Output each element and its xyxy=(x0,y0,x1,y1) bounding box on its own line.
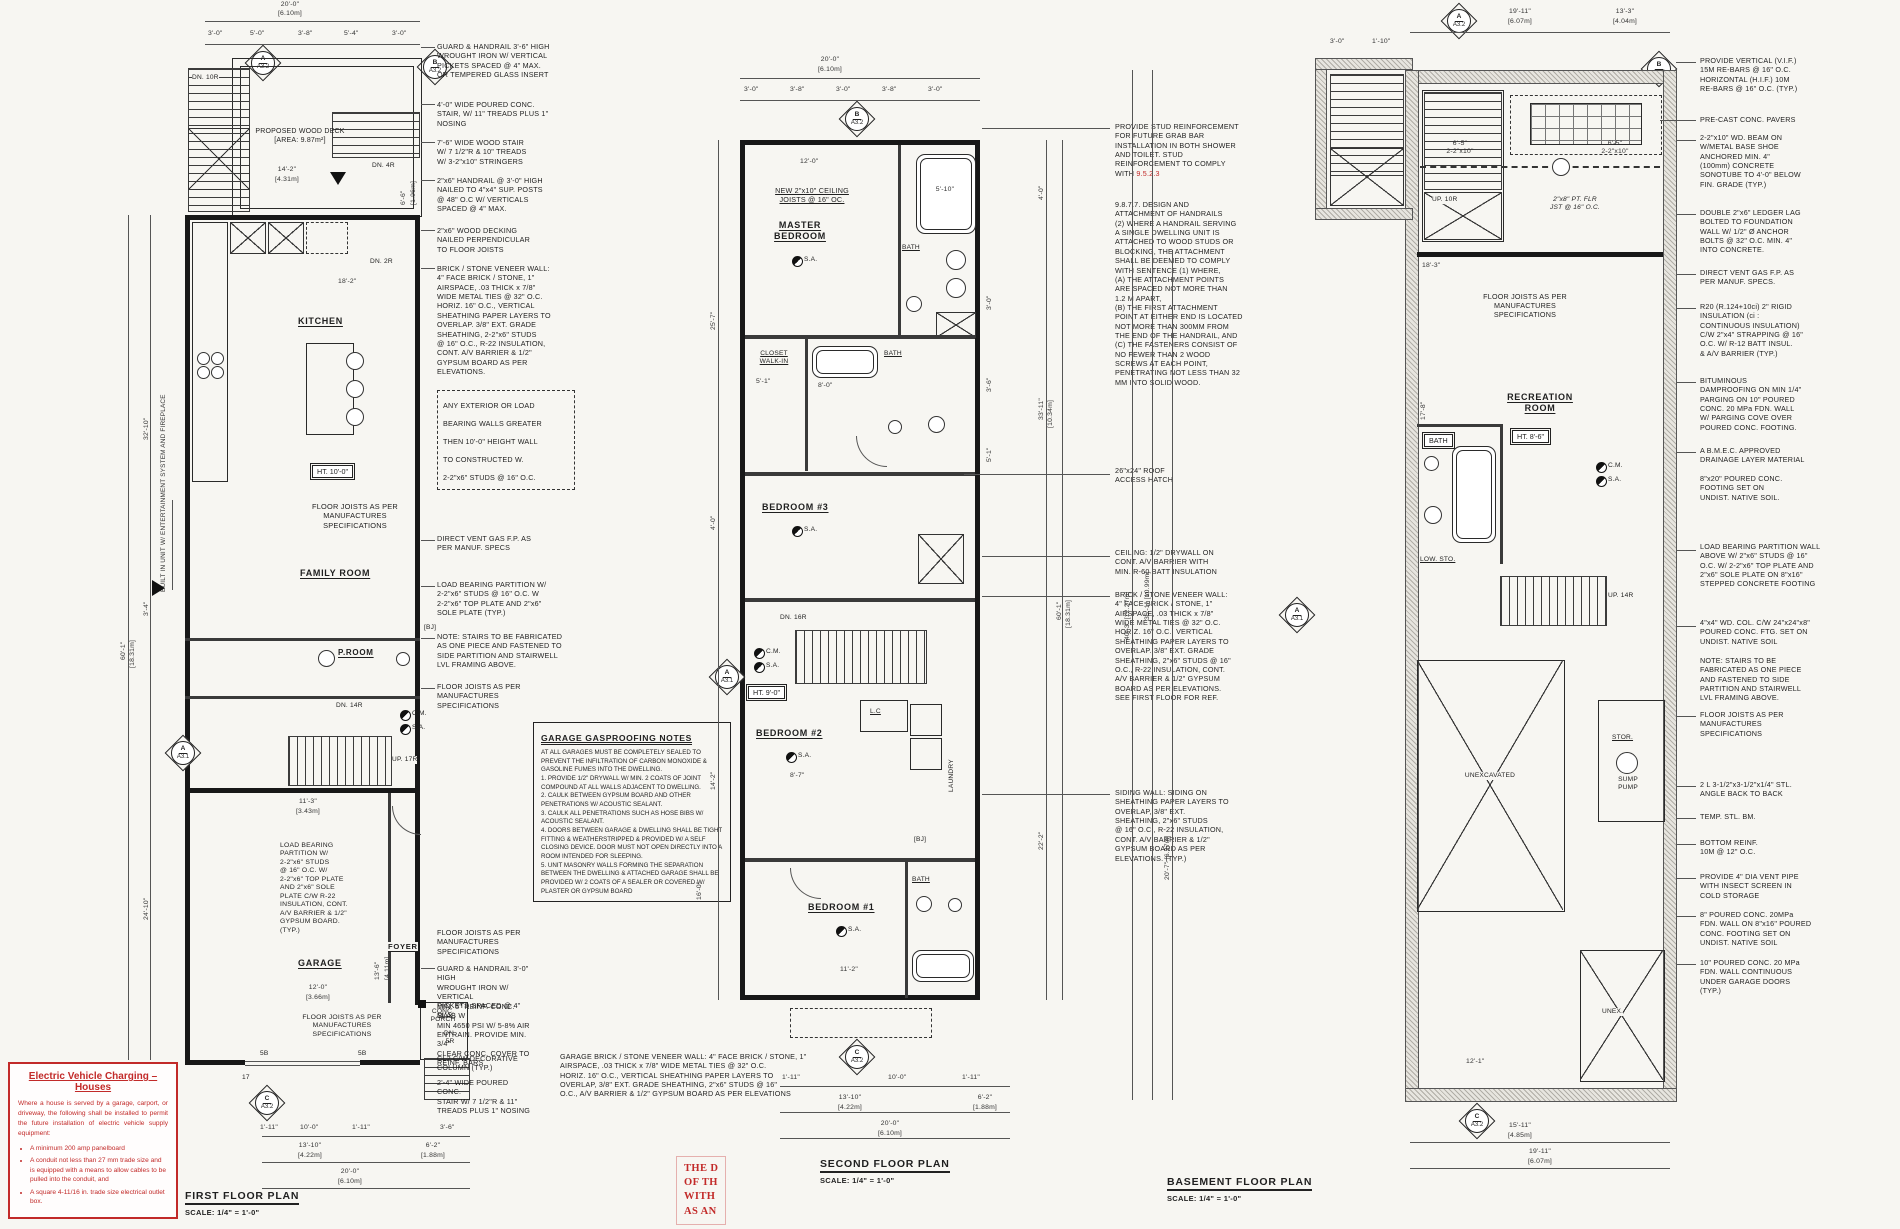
smoke-alarm-icon xyxy=(792,256,803,267)
annotation: LOAD BEARING PARTITION W/ 2-2"x6" STUDS … xyxy=(437,580,587,617)
beam-tag: [BJ] xyxy=(424,624,436,632)
annotation: DIRECT VENT GAS F.P. AS PER MANUF. SPECS xyxy=(437,534,587,553)
annotation: 8" POURED CONC. 20MPa FDN. WALL ON 8"x16… xyxy=(1700,910,1870,947)
dim-label: 60'-1" xyxy=(1056,601,1064,620)
stairwell-wall xyxy=(1315,208,1413,220)
dim-label: [18.31m] xyxy=(129,640,137,668)
dim-label: 8'-7" xyxy=(790,772,805,780)
dim-label: 19'-11" xyxy=(1500,1148,1580,1156)
dim-label: 3'-8" xyxy=(882,86,897,94)
dim-label: [6.07m] xyxy=(1480,18,1560,26)
dimension-line xyxy=(1410,32,1670,33)
beam-label: 6'-5" 2-2"x10" xyxy=(1585,140,1645,157)
dim-label: [10.34m] xyxy=(1047,400,1055,428)
dim-label: 3'-0" xyxy=(836,86,851,94)
dim-label: 11'-2" xyxy=(840,966,858,974)
marker-sheet: A3.2 xyxy=(1453,22,1465,29)
dim-label: 16'-0" xyxy=(696,881,704,900)
ceiling-height-badge: HT. 9'-0" xyxy=(748,686,785,699)
leader-line xyxy=(421,142,435,143)
sump-pump-label: SUMP PUMP xyxy=(1608,776,1648,792)
stair-label: UP. 10R xyxy=(1432,196,1457,204)
dryer xyxy=(910,738,942,770)
stair-x xyxy=(1330,148,1404,206)
sink xyxy=(946,278,966,298)
unexcavated-x xyxy=(1417,660,1563,910)
annotation: 10" POURED CONC. 20 MPa FDN. WALL CONTIN… xyxy=(1700,958,1870,995)
leader-line xyxy=(421,586,435,587)
stair-run xyxy=(795,630,927,684)
garage-door-line xyxy=(245,1061,360,1062)
marker-letter: C xyxy=(853,1049,862,1057)
direction-arrow xyxy=(152,580,165,596)
leader-line xyxy=(421,268,435,269)
range-burner xyxy=(211,366,224,379)
marker-letter: C xyxy=(263,1095,272,1103)
annotation: 2"x6" WOOD DECKING NAILED PERPENDICULAR … xyxy=(437,226,587,254)
dim-label: 1'-11" xyxy=(782,1074,800,1082)
bathtub xyxy=(912,950,974,982)
door-swing xyxy=(856,436,887,467)
dimension-line xyxy=(205,44,420,45)
plan-scale: SCALE: 1/4" = 1'-0" xyxy=(820,1176,894,1185)
section-marker: AA3.1 xyxy=(168,738,198,768)
dimension-line xyxy=(1172,250,1173,1100)
dim-label: 12'-0" xyxy=(800,158,819,166)
leader-line xyxy=(421,540,435,541)
dim-label: [4.85m] xyxy=(1480,1132,1560,1140)
kitchen-counter xyxy=(192,222,228,482)
dim-label: [6.10m] xyxy=(260,10,320,18)
dim-label: [3.66m] xyxy=(288,994,348,1002)
legend-sa: S.A. xyxy=(804,256,817,264)
ceiling-height-badge: HT. 10'-0" xyxy=(312,465,353,478)
dimension-line xyxy=(262,1136,470,1137)
beam-tag: 5B xyxy=(260,1050,268,1058)
garage-gasproofing-notes: GARAGE GASPROOFING NOTES AT ALL GARAGES … xyxy=(533,722,731,902)
sink xyxy=(948,898,962,912)
dim-label: 3'-0" xyxy=(744,86,759,94)
roof-access-hatch xyxy=(918,534,964,584)
room-label-lowsto: LOW. STO. xyxy=(1420,556,1455,564)
leader-line xyxy=(1676,550,1696,551)
room-label-bath: BATH xyxy=(912,876,930,884)
bathtub xyxy=(812,346,878,378)
annotation: BITUMINOUS DAMPROOFING ON MIN 1/4" PARGI… xyxy=(1700,376,1870,432)
dim-label: 3'-0" xyxy=(1330,38,1345,46)
marker-sheet: A3.1 xyxy=(177,754,189,761)
legend-sa: S.A. xyxy=(1608,476,1621,484)
exterior-wall xyxy=(740,995,980,1000)
annotation: PROVIDE STUD REINFORCEMENT FOR FUTURE GR… xyxy=(1115,122,1280,178)
foundation-wall xyxy=(1405,70,1419,1102)
marker-letter: A xyxy=(723,669,732,677)
annotation: DIRECT VENT GAS F.P. AS PER MANUF. SPECS… xyxy=(1700,268,1870,287)
dimension-line xyxy=(780,1138,1010,1139)
dim-label: 11'-3" xyxy=(268,798,348,806)
annotation: PROVIDE 4" DIA VENT PIPE WITH INSECT SCR… xyxy=(1700,872,1870,900)
dim-label: 20'-0" xyxy=(320,1168,380,1176)
ev-charging-note: Electric Vehicle Charging – Houses Where… xyxy=(8,1062,178,1219)
dim-label: [4.04m] xyxy=(1590,18,1660,26)
room-label-family: FAMILY ROOM xyxy=(300,568,370,579)
annotation-text: PROVIDE STUD REINFORCEMENT FOR FUTURE GR… xyxy=(1115,122,1239,178)
leader-line xyxy=(421,230,435,231)
annotation: 8"x20" POURED CONC. FOOTING SET ON UNDIS… xyxy=(1700,474,1870,502)
foundation-wall xyxy=(1663,70,1677,1102)
leader-line xyxy=(421,47,435,48)
partition-wall xyxy=(185,638,420,641)
annotation: 2 L 3-1/2"x3-1/2"x1/4" STL. ANGLE BACK T… xyxy=(1700,780,1870,799)
joists-note: FLOOR JOISTS AS PER MANUFACTURES SPECIFI… xyxy=(1460,292,1590,319)
kitchen-sink xyxy=(268,222,304,254)
leader-line xyxy=(964,474,1110,475)
deck-beam xyxy=(1420,166,1660,168)
plan-scale: SCALE: 1/4" = 1'-0" xyxy=(185,1208,259,1217)
dim-label: 4'-0" xyxy=(1038,185,1046,200)
dimension-line xyxy=(262,1188,470,1189)
room-label-rec: RECREATION ROOM xyxy=(1490,392,1590,415)
marker-sheet: A3.1 xyxy=(721,678,733,685)
dim-label: [3.43m] xyxy=(268,808,348,816)
stool xyxy=(346,380,364,398)
stool xyxy=(346,408,364,426)
dim-label: 24'-10" xyxy=(143,898,151,921)
door-swing xyxy=(392,806,421,835)
wall-note-box: ANY EXTERIOR OR LOAD BEARING WALLS GREAT… xyxy=(437,390,575,490)
washer xyxy=(910,704,942,736)
legend-sa: S.A. xyxy=(412,724,425,732)
dim-label: 33'-11" xyxy=(1038,398,1046,420)
annotation: LOAD BEARING PARTITION WALL ABOVE W/ 2"x… xyxy=(1700,542,1875,589)
toilet xyxy=(1424,506,1442,524)
partition-note: LOAD BEARING PARTITION W/ 2-2"x6" STUDS … xyxy=(280,842,360,935)
dim-label: 20'-7" [6.27m] xyxy=(1164,835,1172,880)
dim-label: 19'-11" xyxy=(1480,8,1560,16)
dim-label: [4.22m] xyxy=(280,1152,340,1160)
section-marker: CA3.2 xyxy=(842,1042,872,1072)
plan-title: FIRST FLOOR PLAN xyxy=(185,1190,299,1205)
room-label-bed2: BEDROOM #2 xyxy=(756,728,823,739)
room-label-unexcavated: UNEXCAVATED xyxy=(1432,772,1548,780)
leader-line xyxy=(421,968,435,969)
dim-label: 13'-10" xyxy=(280,1142,340,1150)
annotation: BRICK / STONE VENEER WALL: 4" FACE BRICK… xyxy=(1115,590,1280,702)
approval-stamp-partial: THE D OF TH WITH AS AN xyxy=(676,1156,726,1225)
annotation: ANY EXTERIOR OR LOAD BEARING WALLS GREAT… xyxy=(443,401,542,482)
leader-line xyxy=(1676,274,1696,275)
dim-label: 13'-6" xyxy=(374,961,382,980)
annotation: CL2 C/W DECORATIVE COLUMN (TYP.) xyxy=(437,1054,532,1073)
room-label-bed1: BEDROOM #1 xyxy=(808,902,875,913)
dim-label: 10'-0" xyxy=(888,1074,907,1082)
tag: 17 xyxy=(242,1074,250,1082)
room-label-bath: BATH xyxy=(902,244,920,252)
section-marker: AA3.1 xyxy=(1282,600,1312,630)
notes-body: AT ALL GARAGES MUST BE COMPLETELY SEALED… xyxy=(541,749,723,896)
dim-label: 22'-2" xyxy=(1038,831,1046,850)
dim-label: 3'-0" xyxy=(208,30,223,38)
exterior-wall xyxy=(415,215,420,1005)
dim-label: 60'-1" xyxy=(120,641,128,660)
dim-label: 5'-1" xyxy=(986,447,994,462)
annotation: FLOOR JOISTS AS PER MANUFACTURES SPECIFI… xyxy=(1700,710,1870,738)
annotation: NOTE: STAIRS TO BE FABRICATED AS ONE PIE… xyxy=(437,632,597,669)
blueprint-sheet: 20'-0" [6.10m] 3'-0" 5'-0" 3'-8" 5'-4" 3… xyxy=(0,0,1900,1229)
dimension-line xyxy=(128,215,129,1060)
section-marker: BA3.2 xyxy=(842,104,872,134)
dimension-line xyxy=(780,1086,1010,1087)
co-alarm-icon xyxy=(400,710,411,721)
foundation-wall xyxy=(1405,1088,1677,1102)
dim-label: 13'-10" xyxy=(820,1094,880,1102)
post-footing xyxy=(1552,158,1570,176)
dimension-line xyxy=(1062,140,1063,1000)
annotation: NOTE: STAIRS TO BE FABRICATED AS ONE PIE… xyxy=(1700,656,1870,703)
exterior-wall xyxy=(740,140,745,1000)
builtin-note: BUILT IN UNIT W/ ENTERTAINMENT SYSTEM AN… xyxy=(160,394,168,592)
room-label-bath: BATH xyxy=(1424,434,1453,447)
dim-label: [6.07m] xyxy=(1500,1158,1580,1166)
annotation: 4"x4" WD. COL. C/W 24"x24"x8" POURED CON… xyxy=(1700,618,1875,646)
dimension-line xyxy=(1132,70,1133,1100)
dim-label: 12'-1" xyxy=(1466,1058,1485,1066)
leader-line xyxy=(1676,878,1696,879)
co-alarm-icon xyxy=(1596,462,1607,473)
room-label-bed3: BEDROOM #3 xyxy=(762,502,829,513)
smoke-alarm-icon xyxy=(1596,476,1607,487)
ev-bullet: A square 4-11/16 in. trade size electric… xyxy=(30,1188,168,1207)
annotation: SIDING WALL: SIDING ON SHEATHING PAPER L… xyxy=(1115,788,1275,863)
dim-label: 17'-8" xyxy=(1420,401,1428,420)
leader-line xyxy=(982,556,1110,557)
ceiling-height-badge: HT. 8'-6" xyxy=(1512,430,1549,443)
room-label-foyer: FOYER xyxy=(388,942,418,951)
garage-door-line xyxy=(245,1065,360,1066)
dim-label: 6'-6" xyxy=(400,190,408,205)
sink xyxy=(396,652,410,666)
dim-label: 6'-2" xyxy=(960,1094,1010,1102)
leader-line xyxy=(1676,214,1696,215)
leader-line xyxy=(1676,308,1696,309)
leader-line xyxy=(1676,626,1696,627)
room-label-closet: CLOSET WALK-IN xyxy=(746,350,802,366)
partition-wall xyxy=(745,335,975,339)
leader-line xyxy=(421,688,435,689)
exterior-wall xyxy=(740,140,980,145)
plan-scale: SCALE: 1/4" = 1'-0" xyxy=(1167,1194,1241,1203)
dim-label: [6.10m] xyxy=(320,1178,380,1186)
dim-label: [4.31m] xyxy=(252,176,322,184)
annotation: BRICK / STONE VENEER WALL: 4" FACE BRICK… xyxy=(437,264,587,376)
notes-title: GARAGE GASPROOFING NOTES xyxy=(541,733,692,745)
room-label-kitchen: KITCHEN xyxy=(298,316,343,327)
smoke-alarm-icon xyxy=(792,526,803,537)
precast-pavers xyxy=(1530,103,1642,145)
marker-letter: A xyxy=(1455,13,1464,21)
kitchen-sink xyxy=(230,222,266,254)
bathtub xyxy=(1452,446,1496,543)
dim-label: 1'-11" xyxy=(962,1074,980,1082)
dim-label: 3'-8" xyxy=(298,30,313,38)
annotation: 2'-4" WIDE POURED CONC. STAIR W/ 7 1/2"R… xyxy=(437,1078,532,1115)
partition-wall xyxy=(1500,424,1503,564)
garage-wall xyxy=(185,788,420,793)
dim-label: 3'-8" xyxy=(790,86,805,94)
stair-label: DN. 10R xyxy=(192,74,219,82)
smoke-alarm-icon xyxy=(400,724,411,735)
dim-label: 5'-0" xyxy=(250,30,265,38)
dimension-line xyxy=(1046,140,1047,1000)
dim-label: 5'-1" xyxy=(756,378,771,386)
leader-line xyxy=(1660,120,1696,121)
marker-sheet: A3.1 xyxy=(1291,616,1303,623)
leader-line xyxy=(421,104,435,105)
porch-roof-below xyxy=(790,1008,932,1038)
dim-label: 40'-3" [12.27m] xyxy=(1124,591,1132,640)
dimension-line xyxy=(718,140,719,1000)
marker-sheet: A3.2 xyxy=(851,120,863,127)
dim-label: 5'-10" xyxy=(920,186,970,194)
section-marker: CA3.2 xyxy=(252,1088,282,1118)
annotation: R20 (R.124+10ci) 2" RIGID INSULATION (ci… xyxy=(1700,302,1870,358)
partition-wall xyxy=(185,696,420,699)
dimension-line xyxy=(740,100,980,101)
sump-pump xyxy=(1616,752,1638,774)
annotation: 4'-0" WIDE POURED CONC. STAIR, W/ 11" TR… xyxy=(437,100,587,128)
annotation: 2-2"x10" WD. BEAM ON W/METAL BASE SHOE A… xyxy=(1700,133,1870,189)
marker-letter: C xyxy=(1473,1113,1482,1121)
dim-label: 12'-0" xyxy=(288,984,348,992)
legend-sa: S.A. xyxy=(848,926,861,934)
annotation: 7'-6" WIDE WOOD STAIR W/ 7 1/2"R & 10" T… xyxy=(437,138,587,166)
annotation: FLOOR JOISTS AS PER MANUFACTURES SPECIFI… xyxy=(437,928,532,956)
marker-sheet: A3.2 xyxy=(851,1058,863,1065)
ev-title: Electric Vehicle Charging – Houses xyxy=(18,1071,168,1093)
bearing-wall xyxy=(1417,252,1663,257)
joists-note: FLOOR JOISTS AS PER MANUFACTURES SPECIFI… xyxy=(300,502,410,530)
stairwell-wall xyxy=(1315,58,1413,70)
annotation: 2"x6" HANDRAIL @ 3'-0" HIGH NAILED TO 4"… xyxy=(437,176,587,213)
stair-run xyxy=(288,736,392,786)
marker-letter: B xyxy=(1655,61,1664,69)
dim-label: 20'-0" xyxy=(860,1120,920,1128)
code-ref: 9.5.2.3 xyxy=(1136,169,1159,178)
dim-label: 25'-7" xyxy=(710,311,718,330)
stair-x xyxy=(188,128,250,190)
annotation: CEILING: 1/2" DRYWALL ON CONT. A/V BARRI… xyxy=(1115,548,1275,576)
builtin-bracket xyxy=(172,500,173,590)
dim-label: 6'-2" xyxy=(408,1142,458,1150)
beam-label: 6'-5" 2-2"x10" xyxy=(1430,140,1490,157)
sink xyxy=(1424,456,1439,471)
range-burner xyxy=(211,352,224,365)
dim-label: 15'-11" xyxy=(1480,1122,1560,1130)
partition-wall xyxy=(898,145,901,335)
partition-wall xyxy=(805,339,808,471)
annotation: TEMP. STL. BM. xyxy=(1700,812,1870,821)
dimension-line xyxy=(740,78,980,79)
ev-bullets: A minimum 200 amp panelboard A conduit n… xyxy=(18,1144,168,1207)
porch-column xyxy=(418,1000,426,1008)
toilet xyxy=(928,416,945,433)
beam-tag: 5B xyxy=(358,1050,366,1058)
room-label-laundry: LAUNDRY xyxy=(948,759,956,792)
annotation: A B.M.E.C. APPROVED DRAINAGE LAYER MATER… xyxy=(1700,446,1870,465)
dim-label: [18.31m] xyxy=(1065,600,1073,628)
stair-label: DN. 4R xyxy=(372,162,395,170)
leader-line xyxy=(982,596,1110,597)
stool xyxy=(346,352,364,370)
room-label-bath: BATH xyxy=(884,350,902,358)
dim-label: 32'-10" xyxy=(143,418,151,441)
annotation: DOUBLE 2"x6" LEDGER LAG BOLTED TO FOUNDA… xyxy=(1700,208,1870,255)
room-label-master: MASTER BEDROOM xyxy=(760,220,840,243)
dim-label: 20'-0" xyxy=(800,56,860,64)
dim-label: 8'-0" xyxy=(818,382,833,390)
leader-line xyxy=(982,794,1110,795)
plan-title: SECOND FLOOR PLAN xyxy=(820,1158,950,1173)
dim-label: 13'-3" xyxy=(1590,8,1660,16)
dim-label: 36'-1" [10.99m] xyxy=(1144,571,1152,620)
ev-bullet: A conduit not less than 27 mm trade size… xyxy=(30,1156,168,1185)
stair-label: DN. 2R xyxy=(370,258,393,266)
dimension-line xyxy=(205,21,420,22)
sink xyxy=(888,420,902,434)
dim-label: 3'-0" xyxy=(392,30,407,38)
direction-arrow xyxy=(330,172,346,185)
annotation: BOTTOM REINF. 10M @ 12" O.C. xyxy=(1700,838,1870,857)
joists-note: FLOOR JOISTS AS PER MANUFACTURES SPECIFI… xyxy=(282,1014,402,1039)
toilet xyxy=(318,650,335,667)
room-label-stor: STOR. xyxy=(1612,734,1633,742)
dim-label: 5'-4" xyxy=(344,30,359,38)
dim-label: 1'-11" xyxy=(352,1124,370,1132)
dim-label: 3'-0" xyxy=(986,295,994,310)
leader-line xyxy=(421,638,435,639)
dim-label: 3'-4" xyxy=(143,601,151,616)
smoke-alarm-icon xyxy=(754,662,765,673)
leader-line xyxy=(1676,382,1696,383)
marker-letter: B xyxy=(853,111,862,119)
dim-label: 20'-0" xyxy=(260,1,320,9)
legend-sa: S.A. xyxy=(798,752,811,760)
stairwell-wall xyxy=(1315,58,1327,220)
leader-line xyxy=(1676,62,1696,63)
annotation: 26"x24" ROOF ACCESS HATCH xyxy=(1115,466,1275,485)
partition-wall xyxy=(745,598,975,602)
dim-label: 4'-0" xyxy=(710,515,718,530)
section-marker: AA3.1 xyxy=(712,662,742,692)
toilet xyxy=(906,296,922,312)
leader-line xyxy=(1676,786,1696,787)
leader-line xyxy=(982,128,1110,129)
legend-sa: S.A. xyxy=(766,662,779,670)
stair-run xyxy=(1500,576,1607,626)
ev-body: Where a house is served by a garage, car… xyxy=(18,1099,168,1139)
dimension-line xyxy=(150,215,151,1060)
toilet xyxy=(916,896,932,912)
beam-tag: [BJ] xyxy=(914,836,926,844)
dimension-line xyxy=(1410,1142,1670,1143)
annotation: GUARD & HANDRAIL 3'-6" HIGH WROUGHT IRON… xyxy=(437,42,587,79)
leader-line xyxy=(1676,964,1696,965)
room-label-lc: L.C xyxy=(870,708,881,716)
legend-cm: C.M. xyxy=(766,648,781,656)
annotation: PRE-CAST CONC. PAVERS xyxy=(1700,115,1875,124)
dim-label: 10'-0" xyxy=(300,1124,319,1132)
stair-label: DN. 16R xyxy=(780,614,807,622)
